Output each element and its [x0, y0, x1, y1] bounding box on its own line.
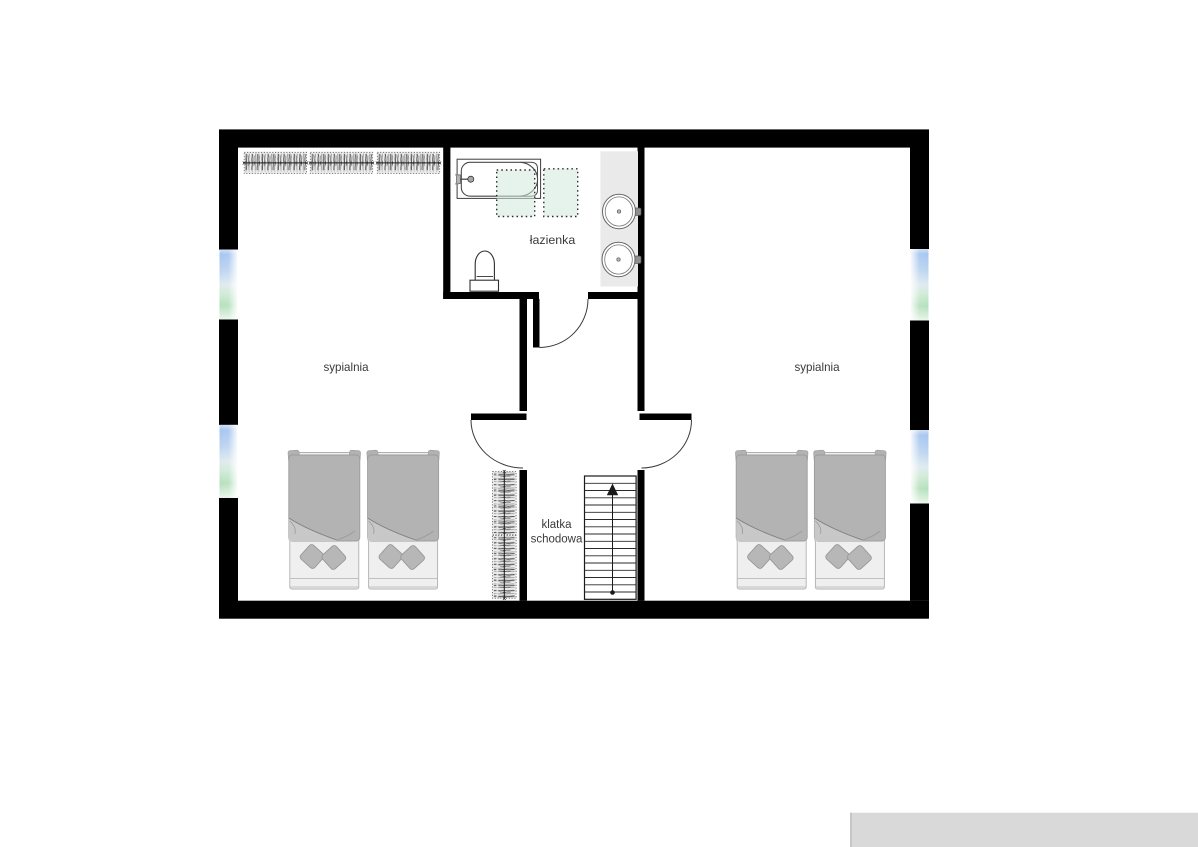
- svg-text:łazienka: łazienka: [530, 233, 576, 247]
- svg-text:sypialnia: sypialnia: [323, 361, 369, 374]
- svg-text:klatka: klatka: [541, 519, 572, 531]
- svg-text:schodowa: schodowa: [531, 533, 583, 545]
- svg-text:sypialnia: sypialnia: [794, 361, 840, 374]
